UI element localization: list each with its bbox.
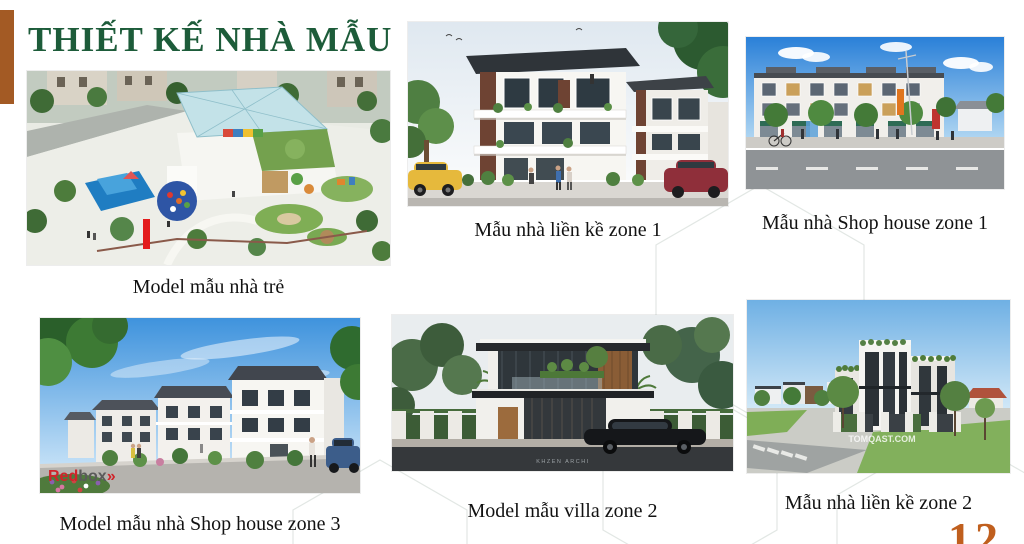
caption-villa-zone2: Model mẫu villa zone 2 [392,500,733,523]
slide-root: THIẾT KẾ NHÀ MẪU [0,0,1024,544]
watermark-corner-site: TOMQAST.COM [848,434,915,444]
caption-shophouse-zone1: Mẫu nhà Shop house zone 1 [746,212,1004,235]
accent-bar [0,10,14,104]
caption-kindergarten: Model mẫu nhà trẻ [27,276,390,299]
caption-shophouse-zone3: Model mẫu nhà Shop house zone 3 [40,513,360,536]
townhouse-zone1-illustration [408,22,728,206]
shophouse-zone3-illustration: Redbox» [40,318,360,493]
shophouse-zone1-illustration [746,37,1004,189]
photo-shophouse-zone3: Redbox» [40,318,360,493]
page-title: THIẾT KẾ NHÀ MẪU [28,20,392,60]
photo-townhouse-zone2: TOMQAST.COM [747,300,1010,473]
watermark-villa-studio: KHZEN ARCHI [536,459,589,465]
kindergarten-illustration [27,71,390,265]
photo-shophouse-zone1 [746,37,1004,189]
caption-townhouse-zone1: Mẫu nhà liền kề zone 1 [408,219,728,242]
townhouse-zone2-illustration: TOMQAST.COM [747,300,1010,473]
page-number: 12 [948,512,1002,544]
watermark-redbox: Redbox» [48,468,116,485]
photo-kindergarten-model [27,71,390,265]
photo-townhouse-zone1 [408,22,728,206]
villa-zone2-illustration: KHZEN ARCHI [392,315,733,471]
photo-villa-zone2: KHZEN ARCHI [392,315,733,471]
